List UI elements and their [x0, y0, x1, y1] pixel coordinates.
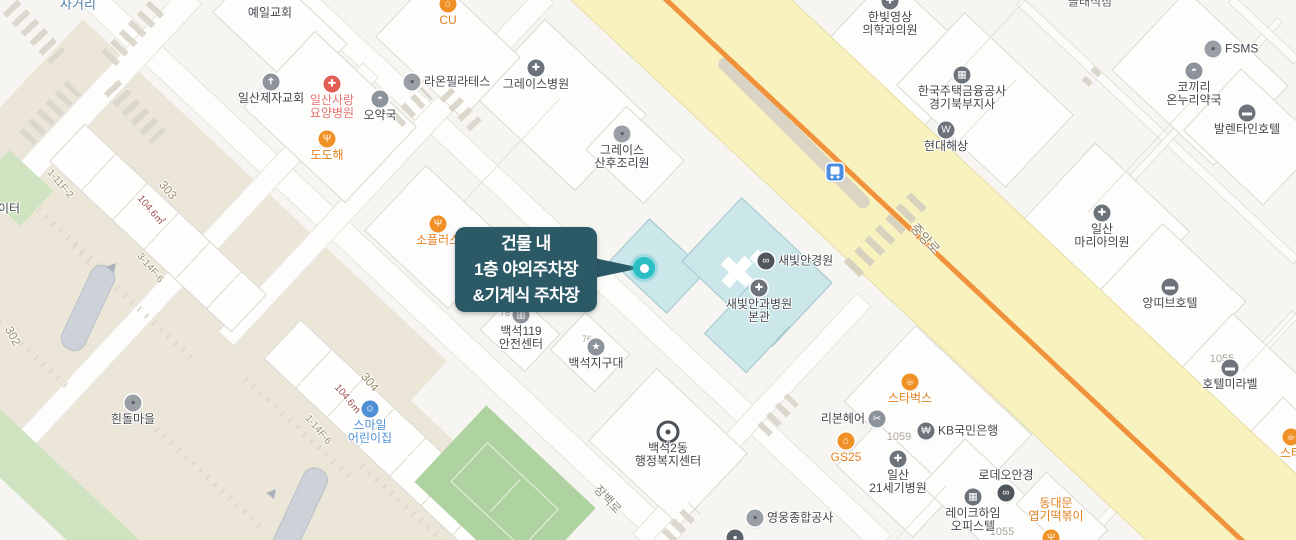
grace-postnatal-label: 그레이스산후조리원 — [594, 144, 649, 170]
scissors-icon: ✂ — [869, 411, 886, 428]
daycare-icon: ☺ — [362, 401, 379, 418]
fsms-label: FSMS — [1225, 43, 1258, 56]
saebit-eye-hospital-label: 새빛안과병원본관 — [726, 298, 792, 324]
restaurant-icon: Ψ — [319, 131, 336, 148]
location-marker[interactable] — [633, 257, 655, 279]
gs25-label: GS25 — [831, 451, 862, 464]
grace-hospital-label: 그레이스병원 — [503, 78, 569, 91]
callout-line-1: 건물 내 — [501, 231, 551, 257]
soplus-label: 소플러스 — [416, 234, 460, 247]
top-edge-cut-label-label: 클래식짐 — [1068, 0, 1112, 9]
bus-stop-icon — [827, 164, 844, 181]
korea-housing-finance-corp-label: 한국주택금융공사경기북부지사 — [918, 85, 1006, 111]
hanbit-radiology-clinic-label: 한빛영상의학과의원 — [862, 11, 917, 37]
tennis-court-lines — [451, 442, 559, 540]
bank-icon: ₩ — [918, 423, 935, 440]
raon-pilates-label: 라온필라테스 — [424, 76, 490, 89]
restaurant-icon: Ψ — [430, 216, 447, 233]
callout-line-2: 1층 야외주차장 — [474, 257, 578, 283]
ilsan-sarang-hospital-label: 일산사랑요양병원 — [310, 94, 354, 120]
generic-poi-icon: ■ — [1205, 41, 1222, 58]
yeongung-construction-label: 영웅종합공사 — [767, 512, 833, 525]
church-icon: ✝ — [263, 74, 280, 91]
parking-info-callout[interactable]: 건물 내 1층 야외주차장 &기계식 주차장 — [455, 227, 597, 312]
ribbon-hair-label: 리본헤어 — [821, 413, 865, 426]
hotel-icon: ▬ — [1222, 360, 1239, 377]
road-label-sageori: 사거리 — [60, 0, 96, 13]
hotel-icon: ▬ — [1162, 279, 1179, 296]
coffee-icon: ☕ — [902, 374, 919, 391]
hospital-icon: ✚ — [528, 60, 545, 77]
restaurant-icon: Ψ — [1043, 530, 1060, 540]
baekseok-119-fire-center-label: 백석119안전센터 — [499, 325, 543, 351]
location-marker-core — [640, 264, 649, 273]
coffee-icon: ☕ — [1283, 429, 1296, 446]
service-icon: ■ — [727, 530, 744, 540]
crosswalk — [3, 0, 65, 64]
antibes-hotel-label: 앙띠브호텔 — [1142, 297, 1197, 310]
map-canvas[interactable]: 중앙로장백로사거리303104.6㎡1-11F-23-14F-630230410… — [0, 0, 1296, 540]
hospital-icon: ✚ — [1094, 205, 1111, 222]
yeil-church-label: 예일교회 — [248, 7, 292, 20]
o-pharmacy-label: 오약국 — [363, 109, 396, 122]
valentine-hotel-label: 발렌타인호텔 — [1214, 123, 1280, 136]
starbucks-right-edge-label: 스타 — [1280, 447, 1296, 460]
dongdaemun-tteokbokki-label: 동대문엽기떡볶이 — [1028, 497, 1083, 523]
saebit-optician-label: 새빛안경원 — [778, 255, 833, 268]
generic-poi-icon: ■ — [404, 74, 421, 91]
hotel-icon: ▬ — [1239, 105, 1256, 122]
hindol-village-label: 흰돌마을 — [111, 413, 155, 426]
ilsan-21c-hospital-label: 일산21세기병원 — [869, 469, 927, 495]
parcel-label: 1059 — [887, 431, 911, 443]
generic-poi-icon: ■ — [747, 510, 764, 527]
kokkiri-onnuri-pharmacy-label: 코끼리온누리약국 — [1166, 81, 1221, 107]
generic-poi-icon: ■ — [614, 126, 631, 143]
hotel-mirabelle-label: 호텔미라벨 — [1202, 378, 1257, 391]
glasses-icon: ∞ — [758, 253, 775, 270]
hospital-icon: ✚ — [890, 451, 907, 468]
rodeo-optician-label: 로데오안경 — [978, 469, 1033, 482]
office-building-icon: ▦ — [954, 67, 971, 84]
pharmacy-icon: ◓ — [1186, 63, 1203, 80]
smile-daycare-label: 스마일어린이집 — [348, 419, 392, 445]
store-icon: ⌂ — [838, 433, 855, 450]
baekseok2-community-center-label: 백석2동행정복지센터 — [635, 442, 701, 468]
playground-cut-label-label: 이터 — [0, 203, 20, 216]
hyundai-marine-label: 현대해상 — [924, 140, 968, 153]
callout-line-3: &기계식 주차장 — [473, 283, 580, 309]
kb-bank-label: KB국민은행 — [938, 425, 998, 438]
glasses-icon: ∞ — [998, 485, 1015, 502]
starbucks-label: 스타벅스 — [888, 392, 932, 405]
pharmacy-icon: ◓ — [372, 91, 389, 108]
lakehaim-officetel-label: 레이크하임오피스텔 — [945, 507, 1000, 533]
hospital-icon: ✚ — [324, 76, 341, 93]
police-icon: ★ — [588, 339, 605, 356]
office-building-icon: ▦ — [965, 489, 982, 506]
baekseok-police-box-label: 백석지구대 — [568, 357, 623, 370]
ilsan-maria-clinic-label: 일산마리아의원 — [1074, 223, 1129, 249]
hospital-icon: ✚ — [751, 280, 768, 297]
cu-store-label: CU — [439, 14, 456, 27]
ilsan-jeja-church-label: 일산제자교회 — [238, 92, 304, 105]
dodohae-label: 도도해 — [310, 149, 343, 162]
generic-poi-icon: ■ — [125, 395, 142, 412]
finance-icon: W — [938, 122, 955, 139]
